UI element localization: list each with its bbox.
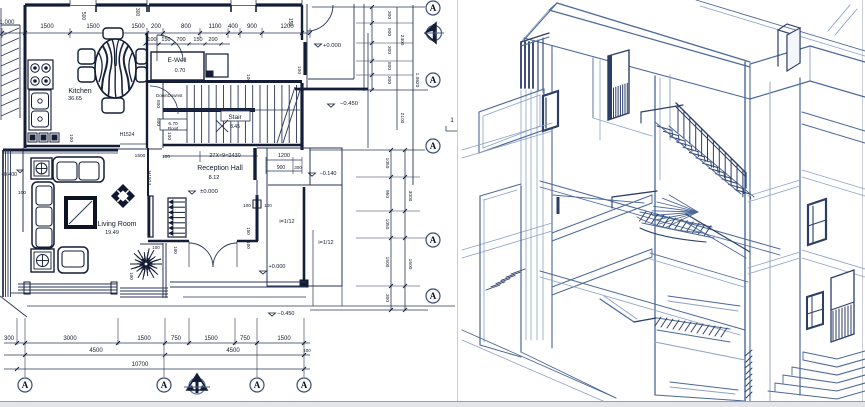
svg-text:Reception Hall: Reception Hall (197, 165, 243, 172)
svg-text:500: 500 (80, 12, 86, 21)
svg-text:−0.450: −0.450 (278, 311, 295, 317)
svg-text:100: 100 (173, 246, 178, 254)
svg-text:3000: 3000 (407, 191, 413, 202)
svg-text:H1524: H1524 (120, 132, 135, 138)
svg-text:400: 400 (228, 24, 239, 30)
svg-text:+0.000: +0.000 (269, 264, 286, 270)
svg-text:1.0620: 1.0620 (414, 73, 420, 88)
svg-text:100: 100 (246, 241, 251, 249)
svg-text:1200: 1200 (278, 153, 290, 159)
svg-text:100: 100 (162, 154, 170, 160)
svg-text:−0.140: −0.140 (320, 171, 337, 177)
svg-text:0.70: 0.70 (175, 68, 186, 74)
svg-text:19.49: 19.49 (105, 230, 119, 236)
svg-text:1500: 1500 (131, 24, 145, 30)
svg-text:1500: 1500 (137, 336, 151, 342)
svg-text:800: 800 (181, 24, 192, 30)
svg-text:A: A (430, 235, 437, 245)
svg-text:300: 300 (386, 46, 392, 54)
svg-text:750: 750 (171, 336, 182, 342)
svg-text:1500: 1500 (40, 24, 54, 30)
svg-text:1050: 1050 (384, 158, 390, 169)
svg-text:1500: 1500 (135, 153, 146, 159)
svg-text:2400: 2400 (399, 35, 405, 46)
svg-text:A: A (430, 3, 437, 13)
svg-text:+0.000: +0.000 (323, 43, 341, 49)
svg-text:A: A (161, 380, 168, 390)
svg-text:1100: 1100 (209, 24, 223, 30)
svg-text:1500: 1500 (407, 259, 413, 270)
svg-text:1500: 1500 (384, 257, 390, 268)
svg-text:150: 150 (246, 227, 251, 235)
svg-text:2100: 2100 (399, 113, 405, 124)
svg-text:i=1/12: i=1/12 (279, 219, 294, 225)
svg-text:±0.000: ±0.000 (200, 189, 218, 195)
svg-text:1500: 1500 (86, 24, 100, 30)
svg-text:900: 900 (247, 24, 258, 30)
svg-text:900: 900 (386, 28, 392, 36)
svg-text:A: A (430, 141, 437, 151)
svg-text:1500: 1500 (277, 336, 291, 342)
svg-text:3000: 3000 (63, 336, 77, 342)
svg-text:150: 150 (193, 37, 202, 43)
svg-text:300: 300 (384, 294, 390, 302)
svg-text:A: A (301, 380, 308, 390)
svg-text:100: 100 (264, 203, 272, 208)
svg-text:300: 300 (386, 76, 392, 84)
svg-text:10700: 10700 (132, 362, 149, 368)
svg-text:100: 100 (18, 190, 26, 196)
svg-text:Living Room: Living Room (98, 221, 137, 228)
svg-text:100: 100 (152, 245, 160, 250)
svg-text:100: 100 (68, 134, 74, 142)
svg-text:36.65: 36.65 (68, 96, 82, 102)
svg-text:200: 200 (208, 37, 217, 43)
svg-text:300: 300 (134, 8, 140, 17)
svg-text:Floorl: Floorl (168, 126, 179, 131)
svg-text:800: 800 (386, 62, 392, 70)
svg-text:Stair: Stair (228, 114, 242, 121)
svg-text:700: 700 (176, 37, 185, 43)
svg-text:100: 100 (166, 132, 172, 140)
svg-text:750: 750 (240, 336, 251, 342)
svg-text:1050: 1050 (384, 219, 390, 230)
svg-text:Kitchen: Kitchen (68, 88, 91, 95)
svg-text:A: A (22, 380, 29, 390)
svg-text:100: 100 (296, 66, 302, 74)
svg-text:100: 100 (129, 272, 134, 280)
svg-text:A: A (430, 75, 437, 85)
svg-text:4500: 4500 (226, 348, 240, 354)
svg-text:8.45: 8.45 (230, 124, 240, 130)
svg-text:i=1/12: i=1/12 (318, 240, 333, 246)
svg-text:100: 100 (303, 348, 311, 353)
svg-text:300: 300 (294, 165, 302, 170)
svg-text:−0.450: −0.450 (340, 101, 358, 107)
svg-text:900: 900 (277, 165, 286, 171)
svg-text:E-Well: E-Well (167, 57, 187, 64)
svg-text:500: 500 (155, 118, 161, 126)
svg-text:150: 150 (287, 18, 293, 27)
svg-text:A: A (430, 291, 437, 301)
svg-text:100: 100 (147, 37, 156, 43)
svg-text:8.12: 8.12 (209, 175, 220, 181)
svg-text:200: 200 (151, 24, 162, 30)
svg-text:1: 1 (450, 117, 454, 124)
svg-text:950: 950 (384, 190, 390, 198)
svg-text:800: 800 (155, 100, 161, 108)
svg-text:4500: 4500 (89, 348, 103, 354)
svg-text:300: 300 (386, 11, 392, 19)
svg-text:300: 300 (4, 336, 15, 342)
svg-text:100: 100 (245, 74, 251, 82)
svg-text:A: A (254, 380, 261, 390)
svg-text:100: 100 (243, 203, 251, 208)
svg-text:1500: 1500 (204, 336, 218, 342)
